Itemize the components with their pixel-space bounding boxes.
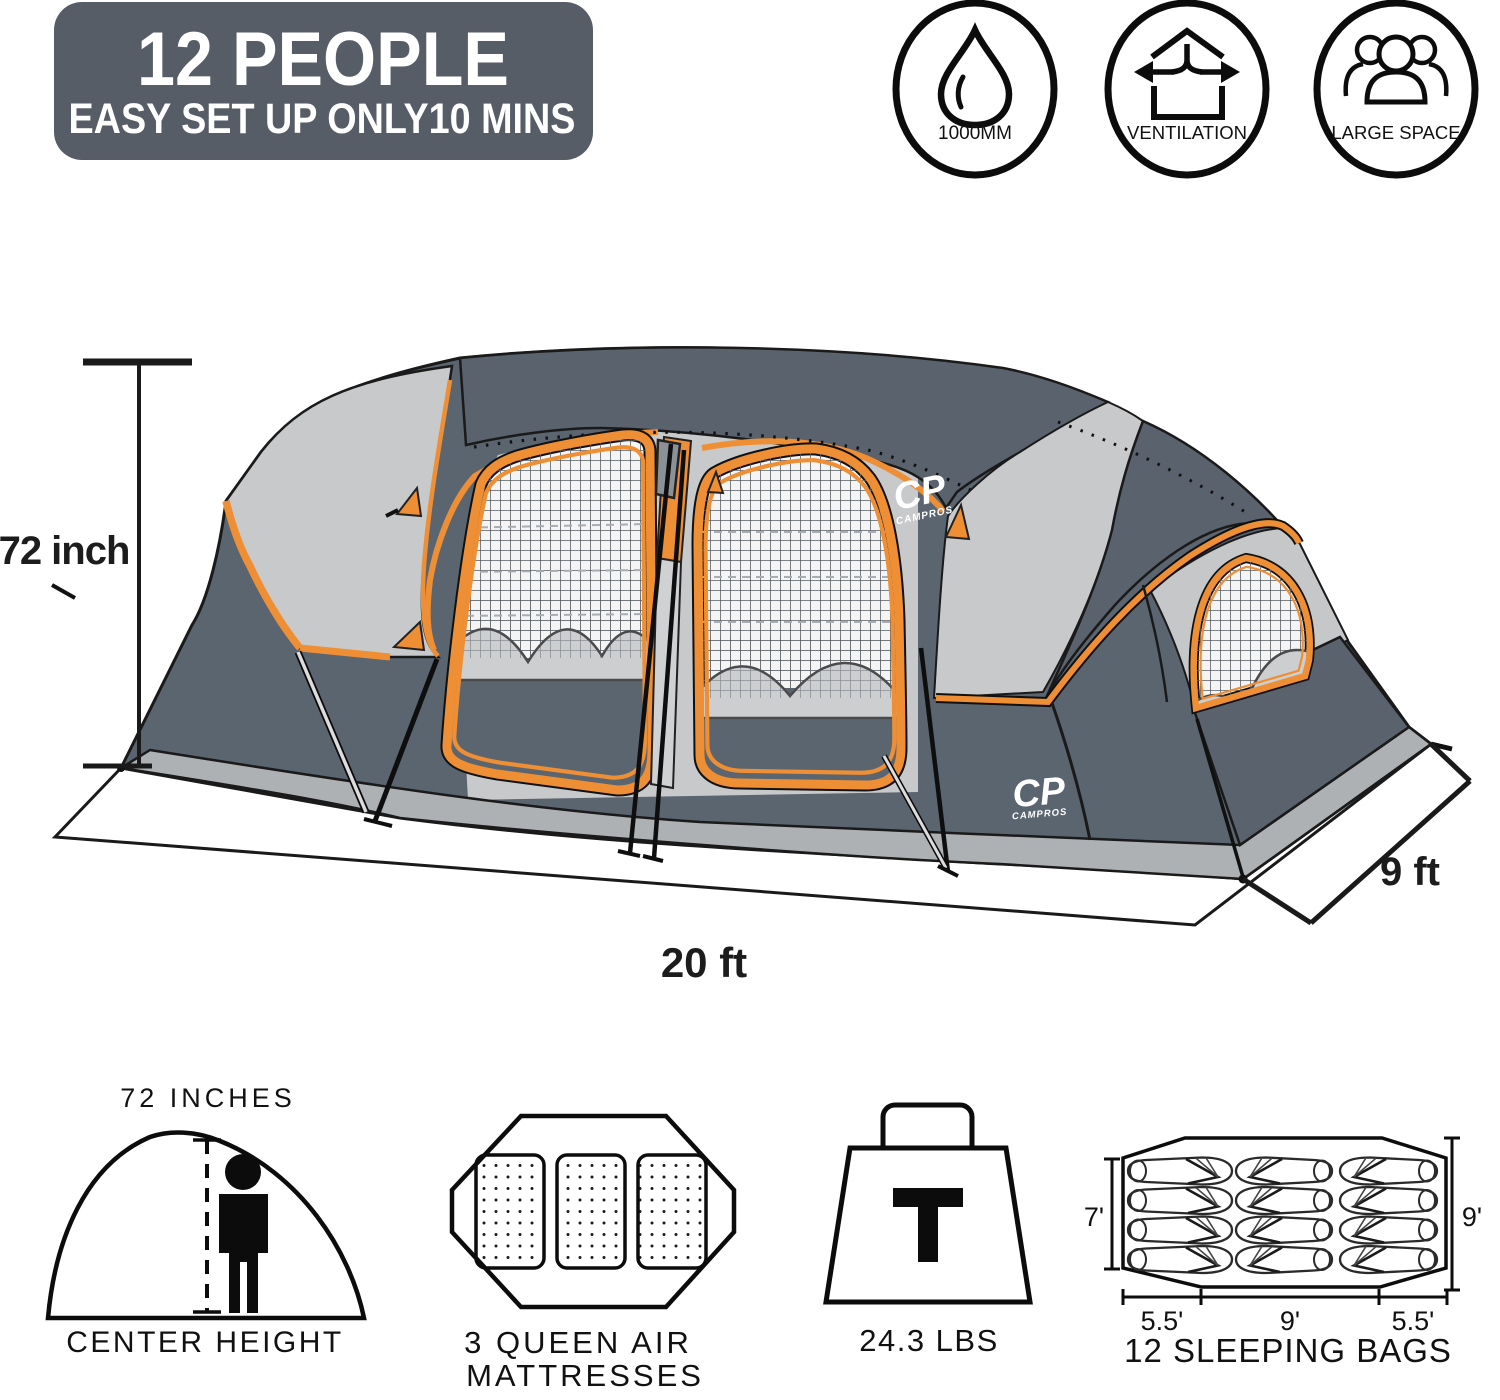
svg-text:20 ft: 20 ft xyxy=(661,939,747,986)
svg-text:12 PEOPLE: 12 PEOPLE xyxy=(137,17,509,102)
svg-text:MATTRESSES: MATTRESSES xyxy=(466,1358,704,1393)
svg-text:7': 7' xyxy=(1084,1202,1104,1232)
svg-text:CENTER HEIGHT: CENTER HEIGHT xyxy=(66,1326,344,1359)
svg-text:3 QUEEN AIR: 3 QUEEN AIR xyxy=(464,1325,692,1360)
svg-text:VENTILATION: VENTILATION xyxy=(1127,122,1247,143)
svg-text:24.3 LBS: 24.3 LBS xyxy=(859,1323,999,1358)
svg-text:EASY SET UP ONLY10 MINS: EASY SET UP ONLY10 MINS xyxy=(69,95,576,143)
svg-text:72 inch: 72 inch xyxy=(0,529,129,573)
svg-text:12 SLEEPING BAGS: 12 SLEEPING BAGS xyxy=(1124,1332,1452,1369)
svg-text:72 INCHES: 72 INCHES xyxy=(120,1083,296,1113)
svg-text:9 ft: 9 ft xyxy=(1380,850,1440,894)
svg-text:LARGE SPACE: LARGE SPACE xyxy=(1331,122,1460,143)
svg-text:1000MM: 1000MM xyxy=(938,123,1012,144)
svg-text:9': 9' xyxy=(1462,1202,1482,1232)
